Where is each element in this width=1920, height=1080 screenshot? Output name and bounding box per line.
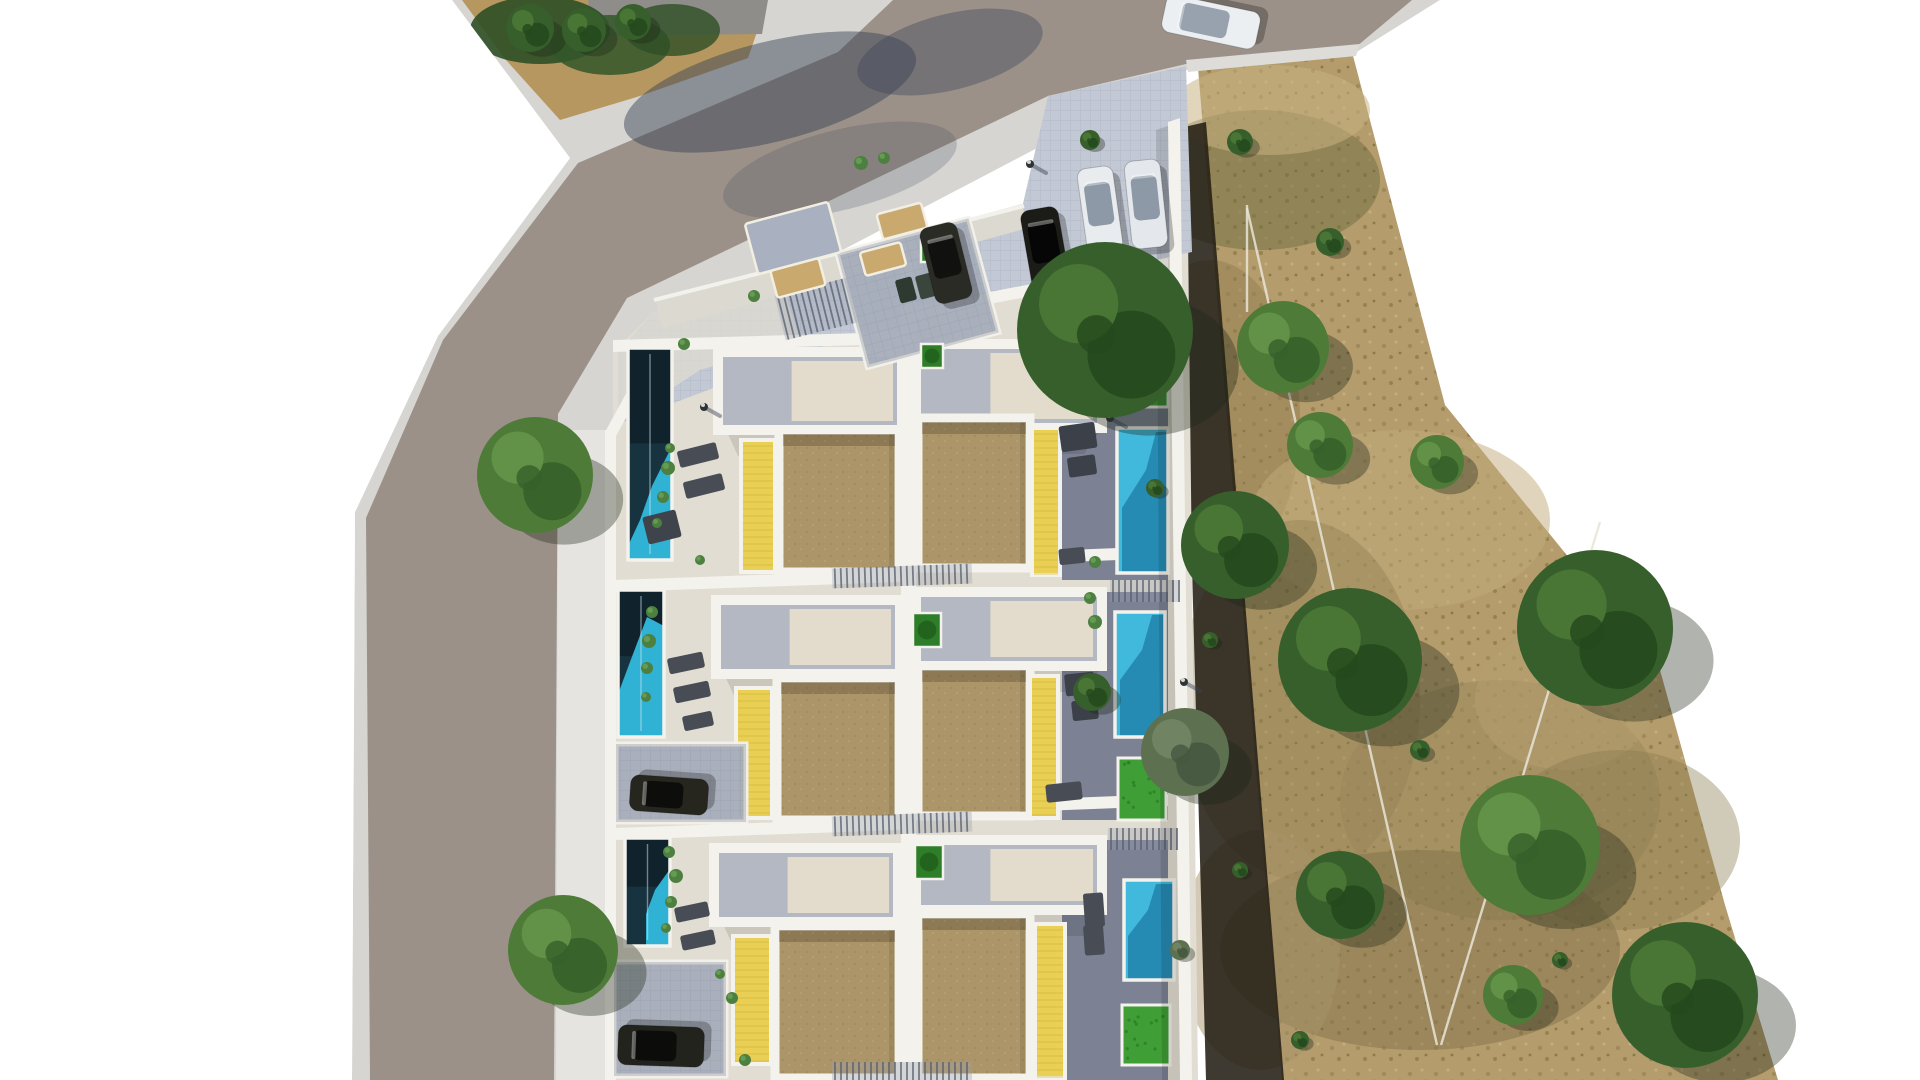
terrace-floor bbox=[990, 601, 1093, 657]
roof-terrace bbox=[918, 914, 1030, 1078]
plant-highlight bbox=[728, 994, 733, 999]
yellow-deck bbox=[1032, 428, 1060, 575]
grass-texture bbox=[1125, 1030, 1128, 1033]
planter-shrub bbox=[918, 621, 937, 640]
potted-plant bbox=[748, 290, 760, 302]
tree-canopy-detail bbox=[1417, 748, 1421, 752]
roof-top-shadow bbox=[783, 434, 895, 446]
tree-canopy-detail bbox=[1077, 315, 1116, 354]
tree-canopy-detail bbox=[1428, 457, 1440, 469]
roof-side-shadow bbox=[1020, 918, 1026, 1074]
car-glass bbox=[633, 1030, 677, 1061]
grass-texture bbox=[1153, 790, 1156, 793]
plant-highlight bbox=[663, 463, 669, 469]
tree-canopy-detail bbox=[1309, 439, 1324, 454]
tree-canopy-detail bbox=[1508, 833, 1539, 864]
deck-boards bbox=[1035, 924, 1065, 1078]
planter-box bbox=[921, 344, 943, 368]
potted-plant bbox=[646, 606, 658, 618]
potted-plant bbox=[657, 491, 669, 503]
potted-plant bbox=[878, 152, 890, 164]
roof-terrace bbox=[777, 678, 899, 820]
plant-highlight bbox=[1086, 594, 1091, 599]
plant-highlight bbox=[741, 1056, 746, 1061]
tree-canopy-detail bbox=[545, 941, 569, 965]
grass-texture bbox=[1127, 761, 1130, 764]
person-head bbox=[701, 403, 705, 407]
terrace-floor bbox=[792, 361, 893, 421]
slat-band bbox=[832, 1062, 972, 1080]
grass-texture bbox=[1133, 1038, 1136, 1041]
potted-plant bbox=[1089, 556, 1101, 568]
plant-highlight bbox=[856, 158, 862, 164]
roof-side-shadow bbox=[889, 930, 895, 1074]
potted-plant bbox=[669, 869, 683, 883]
roof-side-shadow bbox=[889, 434, 895, 568]
terrace-floor bbox=[788, 857, 889, 913]
tree-canopy-detail bbox=[522, 24, 533, 35]
grass-texture bbox=[1123, 763, 1126, 766]
potted-plant bbox=[1084, 592, 1096, 604]
plant-highlight bbox=[662, 924, 667, 929]
potted-plant bbox=[652, 518, 662, 528]
potted-plant bbox=[739, 1054, 751, 1066]
plant-highlight bbox=[644, 636, 650, 642]
plant-highlight bbox=[659, 493, 664, 498]
grass-texture bbox=[1127, 801, 1130, 804]
patio-furniture bbox=[1083, 892, 1105, 927]
grass-texture bbox=[1150, 1021, 1153, 1024]
roof-top-shadow bbox=[922, 918, 1026, 930]
tree-canopy-detail bbox=[1326, 888, 1345, 907]
potted-plant bbox=[665, 443, 675, 453]
yellow-deck bbox=[733, 936, 771, 1064]
roof-top-shadow bbox=[781, 682, 895, 694]
planter-box bbox=[913, 613, 941, 647]
person-head bbox=[1181, 678, 1185, 682]
plant-highlight bbox=[665, 848, 670, 853]
deck-slat-lines bbox=[1034, 434, 1058, 574]
grass-texture bbox=[1122, 796, 1125, 799]
roof-terrace bbox=[775, 926, 899, 1078]
plant-highlight bbox=[716, 970, 721, 975]
planter-shrub bbox=[920, 853, 939, 872]
patio-furniture bbox=[1083, 924, 1105, 955]
tree-canopy-detail bbox=[1503, 990, 1516, 1003]
planter-box bbox=[915, 845, 943, 879]
potted-plant bbox=[665, 896, 677, 908]
tree-canopy-detail bbox=[1236, 140, 1242, 146]
tree-canopy-detail bbox=[516, 465, 542, 491]
roof-terrace bbox=[779, 430, 899, 572]
potted-plant bbox=[678, 338, 690, 350]
grass-texture bbox=[1137, 1015, 1140, 1018]
plant-highlight bbox=[642, 693, 647, 698]
site-plan-render bbox=[0, 0, 1920, 1080]
car-glass bbox=[643, 780, 684, 809]
tree-canopy-detail bbox=[1237, 869, 1241, 873]
tree-canopy-detail bbox=[1207, 639, 1211, 643]
potted-plant bbox=[715, 969, 725, 979]
roof-top-shadow bbox=[922, 670, 1026, 682]
deck-boards bbox=[733, 936, 771, 1064]
tree-canopy-detail bbox=[1171, 745, 1190, 764]
plant-highlight bbox=[880, 154, 885, 159]
terrace-floor bbox=[790, 609, 891, 665]
patio-furniture bbox=[1067, 454, 1098, 478]
tree-canopy-detail bbox=[1268, 339, 1288, 359]
tree-canopy-detail bbox=[1218, 536, 1242, 560]
grass-texture bbox=[1133, 784, 1136, 787]
plant-highlight bbox=[750, 292, 755, 297]
plant-highlight bbox=[643, 664, 648, 669]
potted-plant bbox=[854, 156, 868, 170]
roof-side-shadow bbox=[889, 682, 895, 816]
tree-canopy-detail bbox=[1152, 486, 1156, 490]
plant-highlight bbox=[1091, 558, 1096, 563]
grass-texture bbox=[1126, 1057, 1129, 1060]
potted-plant bbox=[641, 662, 653, 674]
potted-plant bbox=[642, 634, 656, 648]
tree-canopy-detail bbox=[1326, 240, 1332, 246]
roof-terrace bbox=[918, 666, 1030, 816]
potted-plant bbox=[726, 992, 738, 1004]
roof-terraces bbox=[775, 418, 1030, 1078]
plant-highlight bbox=[671, 871, 677, 877]
roof-top-shadow bbox=[922, 422, 1026, 434]
plant-highlight bbox=[1090, 617, 1096, 623]
yellow-deck bbox=[741, 440, 775, 572]
plant-highlight bbox=[696, 556, 701, 561]
tree-canopy-detail bbox=[1662, 983, 1694, 1015]
grass-texture bbox=[1144, 1042, 1147, 1045]
grass-texture bbox=[1136, 1044, 1139, 1047]
potted-plant bbox=[661, 461, 675, 475]
grass-texture bbox=[1132, 781, 1135, 784]
tree-canopy-detail bbox=[1087, 138, 1091, 142]
patio-furniture bbox=[1045, 781, 1083, 803]
plant-highlight bbox=[653, 519, 658, 524]
plant-highlight bbox=[648, 608, 653, 613]
grass-texture bbox=[1156, 800, 1159, 803]
person-head bbox=[1027, 160, 1031, 164]
roof-side-shadow bbox=[1020, 422, 1026, 564]
tree-canopy-detail bbox=[1557, 959, 1561, 963]
grass-texture bbox=[1149, 791, 1152, 794]
potted-plant bbox=[661, 923, 671, 933]
grass-texture bbox=[1126, 1047, 1129, 1050]
roof-gravel bbox=[918, 914, 1030, 1078]
roof-gravel bbox=[777, 678, 899, 820]
tree-canopy-detail bbox=[627, 19, 635, 27]
plant-highlight bbox=[667, 898, 672, 903]
potted-plant bbox=[695, 555, 705, 565]
terrace-floor bbox=[990, 849, 1093, 901]
tree-canopy-detail bbox=[1177, 948, 1181, 952]
tree-canopy-detail bbox=[1327, 648, 1359, 680]
patio-furniture bbox=[1058, 547, 1086, 566]
aerial-render-stage bbox=[0, 0, 1920, 1080]
roof-gravel bbox=[775, 926, 899, 1078]
car bbox=[617, 1019, 712, 1068]
tree-canopy-detail bbox=[577, 26, 587, 36]
tree-canopy-detail bbox=[1297, 1038, 1301, 1042]
roof-top-shadow bbox=[779, 930, 895, 942]
grass-texture bbox=[1127, 1018, 1130, 1021]
patio-furniture bbox=[1058, 422, 1097, 453]
roof-gravel bbox=[918, 418, 1030, 568]
grass-texture bbox=[1135, 1023, 1138, 1026]
car bbox=[629, 768, 717, 816]
grass-texture bbox=[1155, 1019, 1158, 1022]
roof-terrace bbox=[918, 418, 1030, 568]
tree-canopy-detail bbox=[1086, 689, 1094, 697]
potted-plant bbox=[663, 846, 675, 858]
plant-highlight bbox=[680, 340, 685, 345]
yellow-deck bbox=[1035, 924, 1065, 1078]
roof-gravel bbox=[918, 666, 1030, 816]
roof-gravel bbox=[779, 430, 899, 572]
grass-texture bbox=[1132, 806, 1135, 809]
grass-texture bbox=[1153, 1047, 1156, 1050]
car-glass bbox=[1130, 175, 1160, 221]
planter-shrub bbox=[925, 349, 940, 364]
potted-plant bbox=[1088, 615, 1102, 629]
potted-plant bbox=[641, 692, 651, 702]
plant-highlight bbox=[666, 444, 671, 449]
roof-side-shadow bbox=[1020, 670, 1026, 812]
tree-canopy-detail bbox=[1570, 615, 1604, 649]
